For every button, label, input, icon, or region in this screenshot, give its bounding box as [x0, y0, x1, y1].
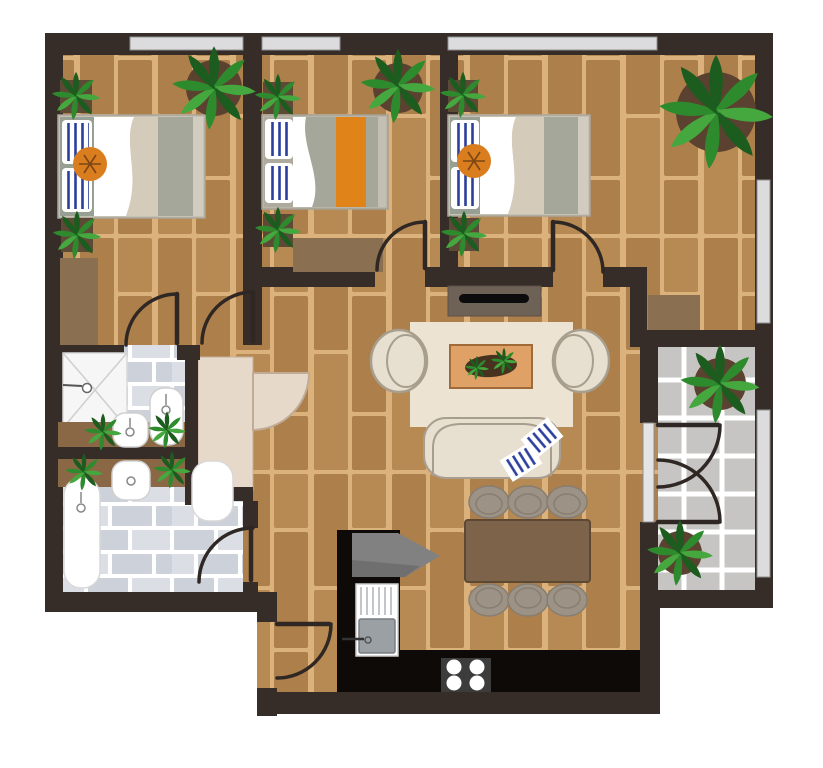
floor-plan-drawing	[0, 0, 823, 768]
wall-balcony-top	[647, 330, 757, 347]
dining-table[interactable]	[465, 520, 590, 582]
bed2	[262, 115, 388, 209]
window-right-upper	[757, 180, 770, 323]
wall-bath2-right-stub	[243, 582, 258, 594]
tv-icon	[459, 294, 529, 303]
wall-bath-bottom	[45, 592, 259, 612]
bidet-lower[interactable]	[112, 461, 150, 500]
bed3-round-cushion	[457, 144, 491, 178]
alcove-rug	[648, 295, 700, 330]
shower-drain-icon	[83, 384, 92, 393]
wall-bed2-bottom-right	[425, 267, 448, 287]
outside-mask-bottom-left	[0, 612, 257, 768]
wall-balcony-left-upper	[640, 347, 658, 423]
wall-bottom	[257, 692, 660, 714]
bedroom1-dresser	[60, 258, 98, 345]
balcony-glass-panel	[643, 423, 654, 522]
wall-balcony-bottom	[640, 590, 773, 608]
bidet-upper[interactable]	[113, 413, 148, 447]
window-right-lower	[757, 410, 770, 577]
armchair-right[interactable]	[553, 330, 609, 392]
bed1	[58, 115, 205, 218]
wall-bed3-bottom-left	[448, 267, 553, 287]
wall-alcove	[630, 270, 647, 347]
window-bedroom3	[448, 37, 657, 50]
window-bedroom2	[262, 37, 340, 50]
bathtub[interactable]	[64, 478, 100, 588]
wall-bath2-right-upper	[243, 501, 258, 528]
toilet-lower[interactable]	[192, 461, 233, 521]
dining-set	[465, 486, 590, 616]
armchair-left[interactable]	[371, 330, 427, 392]
wall-balcony-left-lower	[640, 522, 658, 600]
wall-bath-divider	[45, 445, 198, 461]
wall-kitchen-right	[640, 600, 660, 714]
outside-mask-bottom-right	[660, 608, 823, 768]
bedroom2-dresser	[293, 238, 383, 272]
bed3	[448, 115, 590, 216]
bed1-round-cushion	[73, 147, 107, 181]
bed2-orange-runner	[336, 117, 366, 207]
stove[interactable]	[441, 658, 491, 692]
window-bedroom1	[130, 37, 243, 50]
wall-hall-stub	[243, 270, 273, 287]
sofa[interactable]	[424, 418, 561, 480]
floor-plan-stage	[0, 0, 823, 768]
coffee-table[interactable]	[450, 345, 532, 388]
wall-corridor-stub-top	[257, 592, 277, 622]
